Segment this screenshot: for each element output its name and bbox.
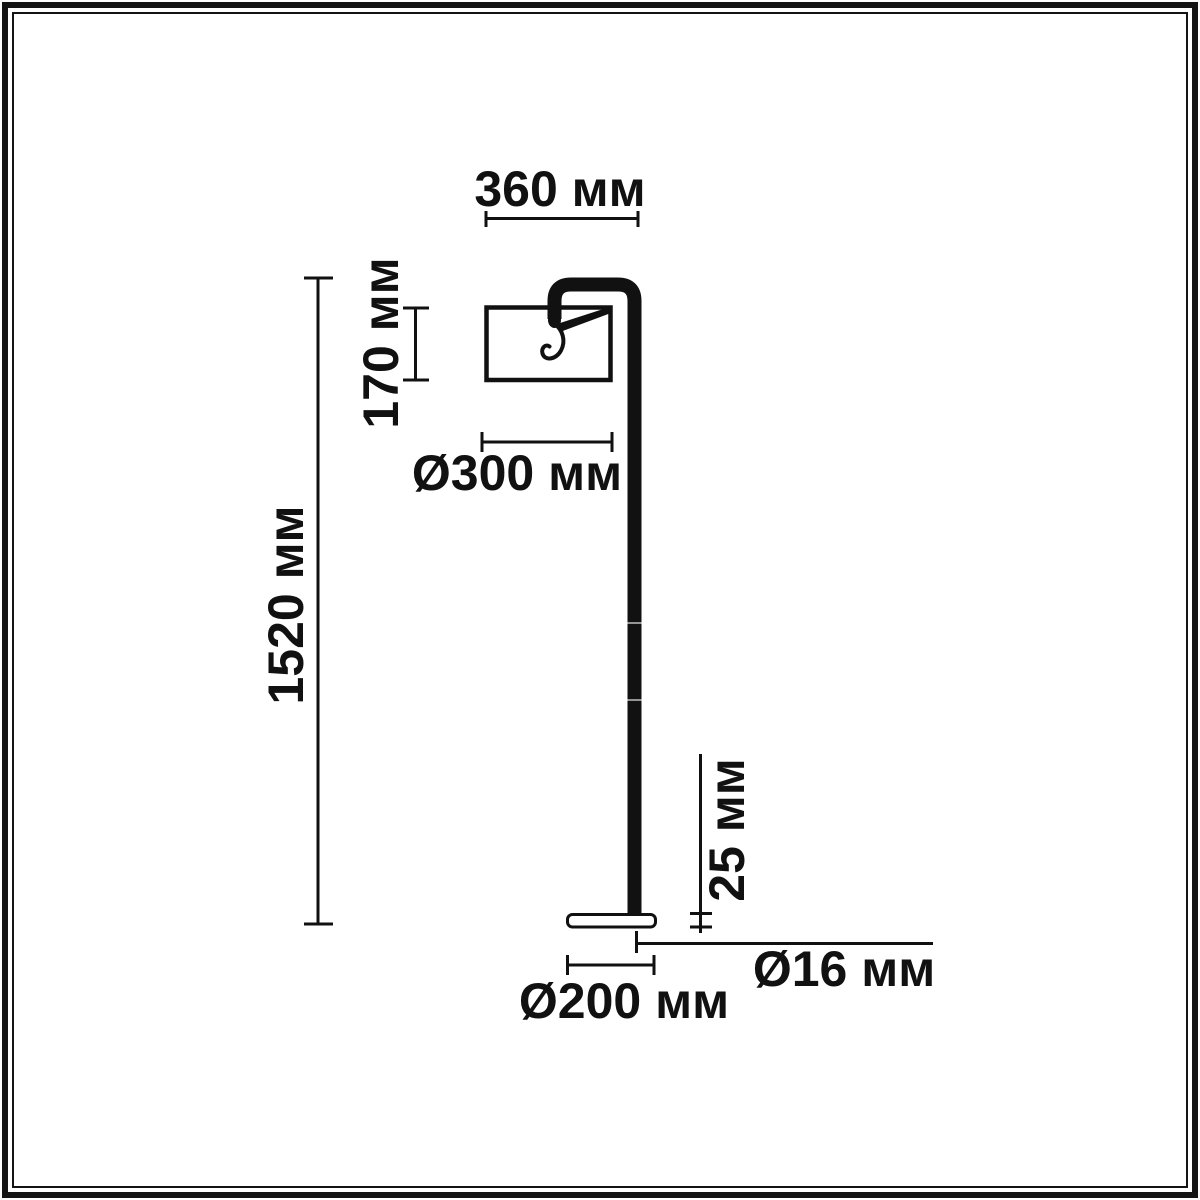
drawing-page: 360 мм 170 мм Ø300 мм 1520 мм (0, 0, 1200, 1200)
dimension-base-thickness: 25 мм (690, 754, 755, 933)
dimension-total-height: 1520 мм (258, 278, 333, 924)
base-disc (568, 915, 656, 928)
dim-label-base-diameter: Ø200 мм (519, 973, 729, 1029)
floor-lamp-technical-drawing: 360 мм 170 мм Ø300 мм 1520 мм (0, 0, 1200, 1200)
dimension-shade-height: 170 мм (353, 257, 429, 428)
dimension-base-diameter: Ø200 мм (519, 955, 729, 1029)
dim-label-shade-height: 170 мм (353, 257, 409, 428)
dim-label-shade-diameter: Ø300 мм (412, 445, 622, 501)
dim-label-total-height: 1520 мм (258, 505, 314, 704)
lamp-body (487, 285, 656, 954)
dimension-arm-reach: 360 мм (474, 161, 645, 227)
dim-label-pole-diameter: Ø16 мм (753, 941, 935, 997)
dim-label-arm-reach: 360 мм (474, 161, 645, 217)
dimension-shade-diameter: Ø300 мм (412, 432, 622, 501)
dim-label-base-thickness: 25 мм (699, 758, 755, 901)
